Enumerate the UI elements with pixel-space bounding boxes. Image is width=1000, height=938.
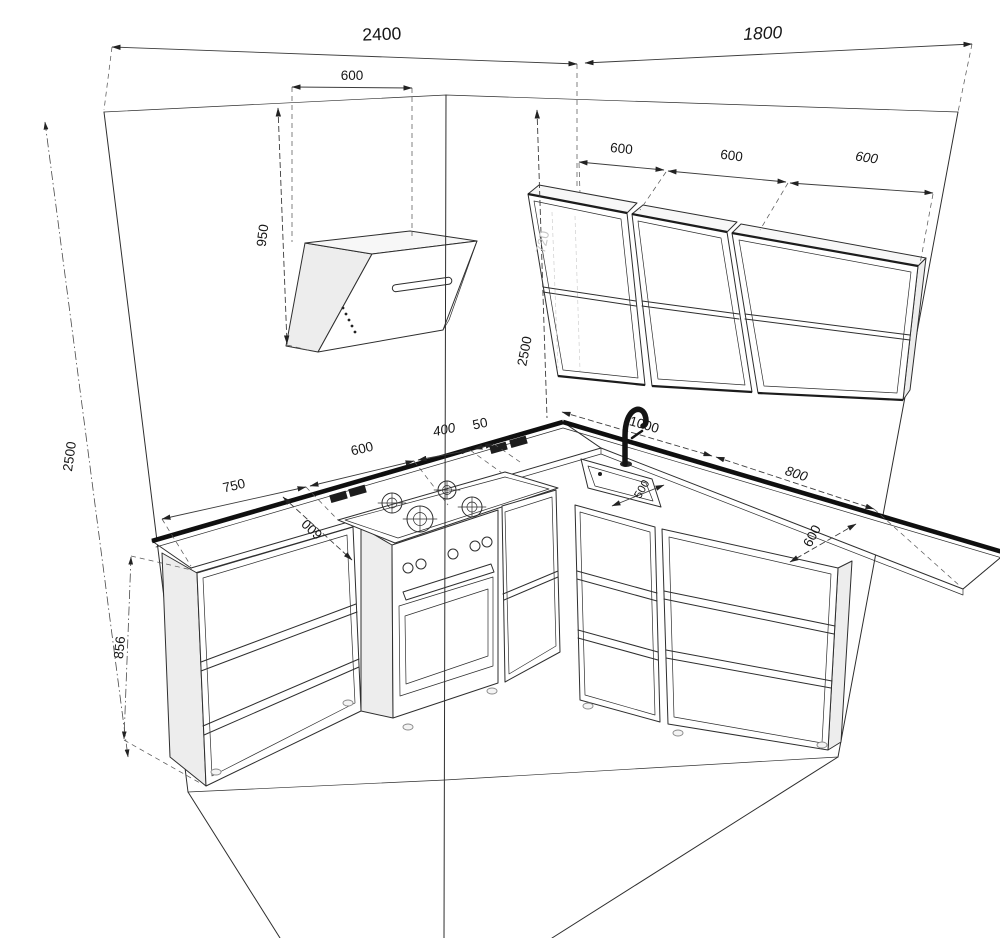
dimension-wall-cabinet-1: 600 <box>579 140 664 170</box>
oven-side <box>361 527 393 718</box>
wall-cabinet-1 <box>528 194 645 385</box>
dimension-wall-cabinet-3: 600 <box>790 149 933 193</box>
kitchen-perspective-drawing: 2400 1800 600 950 2500 2500 720 600 <box>0 0 1000 938</box>
dimension-label: 600 <box>719 147 743 165</box>
dimension-hood-width: 600 <box>292 68 412 88</box>
dimension-label: 1800 <box>743 22 783 44</box>
dimension-room-height-corner: 2500 <box>514 110 547 418</box>
dimension-label: 950 <box>254 223 272 247</box>
cooker-hood <box>286 231 477 352</box>
dimension-label: 600 <box>854 149 879 167</box>
dimension-label: 50 <box>471 415 489 433</box>
floor-line-right <box>552 757 838 938</box>
sink-base-front <box>575 505 660 722</box>
dimension-label: 600 <box>349 439 374 459</box>
ceiling-edge <box>104 95 958 112</box>
dimension-label: 2500 <box>514 335 534 367</box>
dimension-ceiling-to-hood: 950 <box>254 108 287 344</box>
faucet-lever <box>632 431 642 438</box>
base-400-front <box>502 490 560 682</box>
base-800-front <box>662 529 838 750</box>
dimension-label: 2400 <box>362 23 402 44</box>
dimension-right-wall-width: 1800 <box>585 22 972 63</box>
base-cabinet-800 <box>662 529 852 750</box>
dimension-label: 750 <box>221 476 246 496</box>
right-wall-right-edge <box>838 112 958 757</box>
sink-base-cabinet <box>575 505 660 722</box>
floor-line-left <box>188 792 280 938</box>
dimension-room-height-left: 2500 <box>45 122 128 757</box>
base-750-front <box>197 527 361 786</box>
dimension-label: 856 <box>111 636 128 660</box>
sink-drain <box>598 472 602 476</box>
wall-cabinets <box>528 185 926 400</box>
oven <box>361 510 498 718</box>
kitchen-drawing-page: 2400 1800 600 950 2500 2500 720 600 <box>0 0 1000 938</box>
dimension-label: 600 <box>341 68 364 83</box>
dimension-wall-cabinet-2: 600 <box>668 147 786 182</box>
dimension-label: 2500 <box>60 440 79 472</box>
dimension-base-height: 856 <box>111 557 131 739</box>
dimension-left-wall-width: 2400 <box>112 23 577 64</box>
dimension-label: 400 <box>431 420 457 439</box>
dimension-label: 600 <box>609 140 633 157</box>
dimension-label: 800 <box>783 463 810 484</box>
wall-floor-junction <box>188 757 838 792</box>
base-cabinet-400 <box>502 490 560 682</box>
